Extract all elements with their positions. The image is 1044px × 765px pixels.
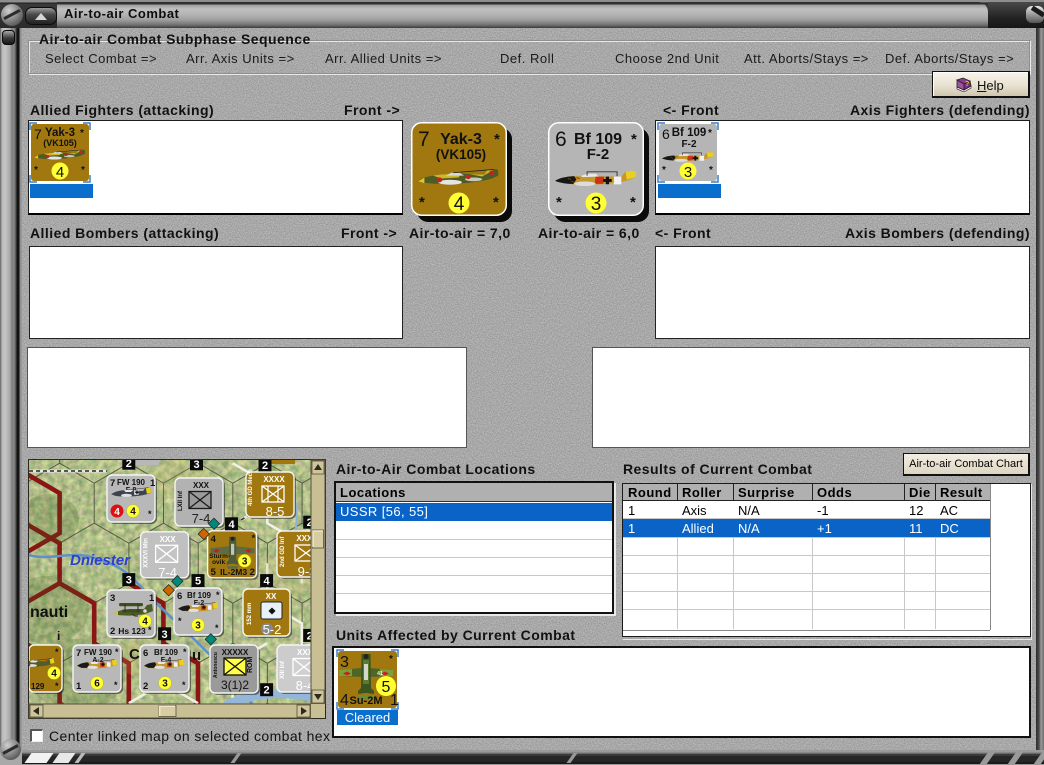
svg-text:*: * — [183, 647, 187, 657]
svg-text:FW 190: FW 190 — [84, 648, 113, 657]
svg-text:5-2: 5-2 — [263, 622, 282, 637]
svg-text:nauti: nauti — [30, 604, 68, 621]
svg-text:*: * — [494, 131, 500, 148]
svg-text:3: 3 — [193, 459, 199, 471]
svg-text:Bf 109: Bf 109 — [154, 648, 179, 657]
svg-text:3(1)2: 3(1)2 — [221, 678, 249, 692]
svg-text:3: 3 — [591, 194, 602, 215]
svg-text:5: 5 — [211, 567, 217, 578]
svg-text:FW 190: FW 190 — [117, 478, 146, 487]
svg-text:*: * — [252, 533, 256, 543]
svg-text:8-5: 8-5 — [266, 504, 285, 519]
svg-text:IL-2M3: IL-2M3 — [220, 567, 247, 577]
svg-text:XX: XX — [266, 592, 277, 601]
svg-text:*: * — [556, 194, 562, 211]
svg-text:*: * — [182, 680, 186, 690]
svg-text:4th GD Mech: 4th GD Mech — [248, 469, 254, 506]
svg-text:4: 4 — [454, 194, 465, 215]
svg-text:Yak-3: Yak-3 — [440, 131, 482, 148]
svg-text:*: * — [148, 625, 152, 635]
svg-text:Su-2M: Su-2M — [350, 695, 383, 707]
svg-text:*: * — [709, 165, 713, 176]
svg-text:*: * — [419, 194, 425, 211]
svg-text:XXX: XXX — [193, 481, 210, 490]
svg-text:41: 41 — [377, 671, 383, 677]
svg-text:1: 1 — [150, 478, 156, 489]
svg-text:*: * — [114, 680, 118, 690]
svg-text:3: 3 — [242, 556, 248, 567]
svg-text:F-2: F-2 — [682, 139, 697, 150]
svg-text:7: 7 — [34, 126, 42, 142]
svg-text:3: 3 — [340, 654, 349, 671]
svg-text:Antonescu: Antonescu — [213, 652, 219, 678]
svg-text:*: * — [81, 165, 85, 176]
svg-text:XXXVI Min: XXXVI Min — [144, 538, 150, 568]
svg-text:i: i — [57, 629, 60, 643]
svg-text:2: 2 — [110, 626, 115, 637]
svg-text:2: 2 — [126, 459, 132, 470]
svg-text:LXII Inf: LXII Inf — [178, 490, 184, 511]
svg-text:XXXX: XXXX — [263, 475, 285, 484]
svg-text:*: * — [662, 165, 666, 176]
svg-text:3: 3 — [195, 621, 201, 632]
svg-text:*: * — [80, 128, 84, 139]
svg-text:7: 7 — [110, 478, 115, 489]
svg-text:3: 3 — [162, 679, 168, 690]
svg-text:1: 1 — [149, 593, 155, 604]
svg-text:4: 4 — [340, 692, 349, 709]
svg-text:C: C — [129, 646, 140, 663]
svg-text:152 mm: 152 mm — [247, 603, 253, 625]
svg-text:4: 4 — [130, 507, 136, 518]
svg-text:*: * — [148, 509, 152, 519]
svg-text:Hs 123: Hs 123 — [118, 626, 146, 636]
svg-text:*: * — [55, 681, 59, 691]
svg-text:*: * — [55, 647, 59, 657]
svg-text:*: * — [708, 128, 712, 139]
svg-text:XXXXX: XXXXX — [222, 648, 249, 657]
svg-text:ovik: ovik — [212, 559, 225, 566]
svg-text:*: * — [630, 194, 636, 211]
svg-text:*: * — [216, 590, 220, 600]
svg-text:4: 4 — [51, 669, 57, 680]
svg-text:6: 6 — [555, 128, 567, 151]
svg-text:7-4: 7-4 — [158, 565, 177, 580]
svg-text:6: 6 — [94, 679, 100, 690]
svg-text:*: * — [178, 616, 182, 626]
svg-text:6: 6 — [662, 126, 670, 142]
svg-text:6: 6 — [143, 648, 148, 659]
svg-text:*: * — [34, 165, 38, 176]
svg-text:(VK105): (VK105) — [43, 138, 77, 148]
svg-text:129: 129 — [31, 682, 45, 691]
svg-text:3: 3 — [684, 164, 692, 181]
svg-text:3: 3 — [110, 593, 115, 604]
svg-text:F-2: F-2 — [587, 146, 610, 163]
svg-text:XXX: XXX — [160, 535, 177, 544]
svg-text:4: 4 — [211, 534, 217, 545]
svg-text:Dniester: Dniester — [70, 552, 131, 569]
svg-text:*: * — [115, 647, 119, 657]
svg-text:ROM: ROM — [247, 657, 254, 674]
svg-text:6: 6 — [177, 591, 182, 602]
svg-text:*: * — [493, 194, 499, 211]
svg-text:2: 2 — [262, 460, 268, 472]
svg-text:XIII Inf: XIII Inf — [280, 660, 286, 679]
svg-text:(VK105): (VK105) — [436, 147, 486, 162]
svg-text:2nd GD Inf: 2nd GD Inf — [280, 536, 286, 567]
svg-text:3: 3 — [162, 629, 168, 641]
svg-text:4: 4 — [264, 576, 271, 588]
svg-text:1: 1 — [390, 692, 399, 709]
svg-text:7-4: 7-4 — [192, 511, 211, 526]
svg-text:5: 5 — [195, 576, 201, 588]
svg-text:4: 4 — [114, 507, 120, 518]
svg-text:4: 4 — [56, 164, 64, 181]
svg-text:*: * — [215, 623, 219, 633]
svg-text:u: u — [192, 647, 201, 664]
svg-text:1: 1 — [76, 681, 82, 692]
svg-text:Bf 109: Bf 109 — [187, 591, 212, 600]
svg-text:7: 7 — [76, 648, 81, 659]
svg-text:2: 2 — [264, 685, 270, 697]
svg-text:3: 3 — [126, 575, 132, 587]
svg-text:2: 2 — [250, 567, 255, 578]
svg-text:7: 7 — [418, 128, 430, 151]
svg-text:*: * — [389, 654, 393, 665]
svg-text:4: 4 — [228, 519, 235, 531]
svg-text:*: * — [631, 131, 637, 148]
svg-text:?: ? — [965, 81, 969, 88]
svg-text:Bf 109: Bf 109 — [672, 127, 707, 139]
svg-text:2: 2 — [143, 681, 148, 692]
